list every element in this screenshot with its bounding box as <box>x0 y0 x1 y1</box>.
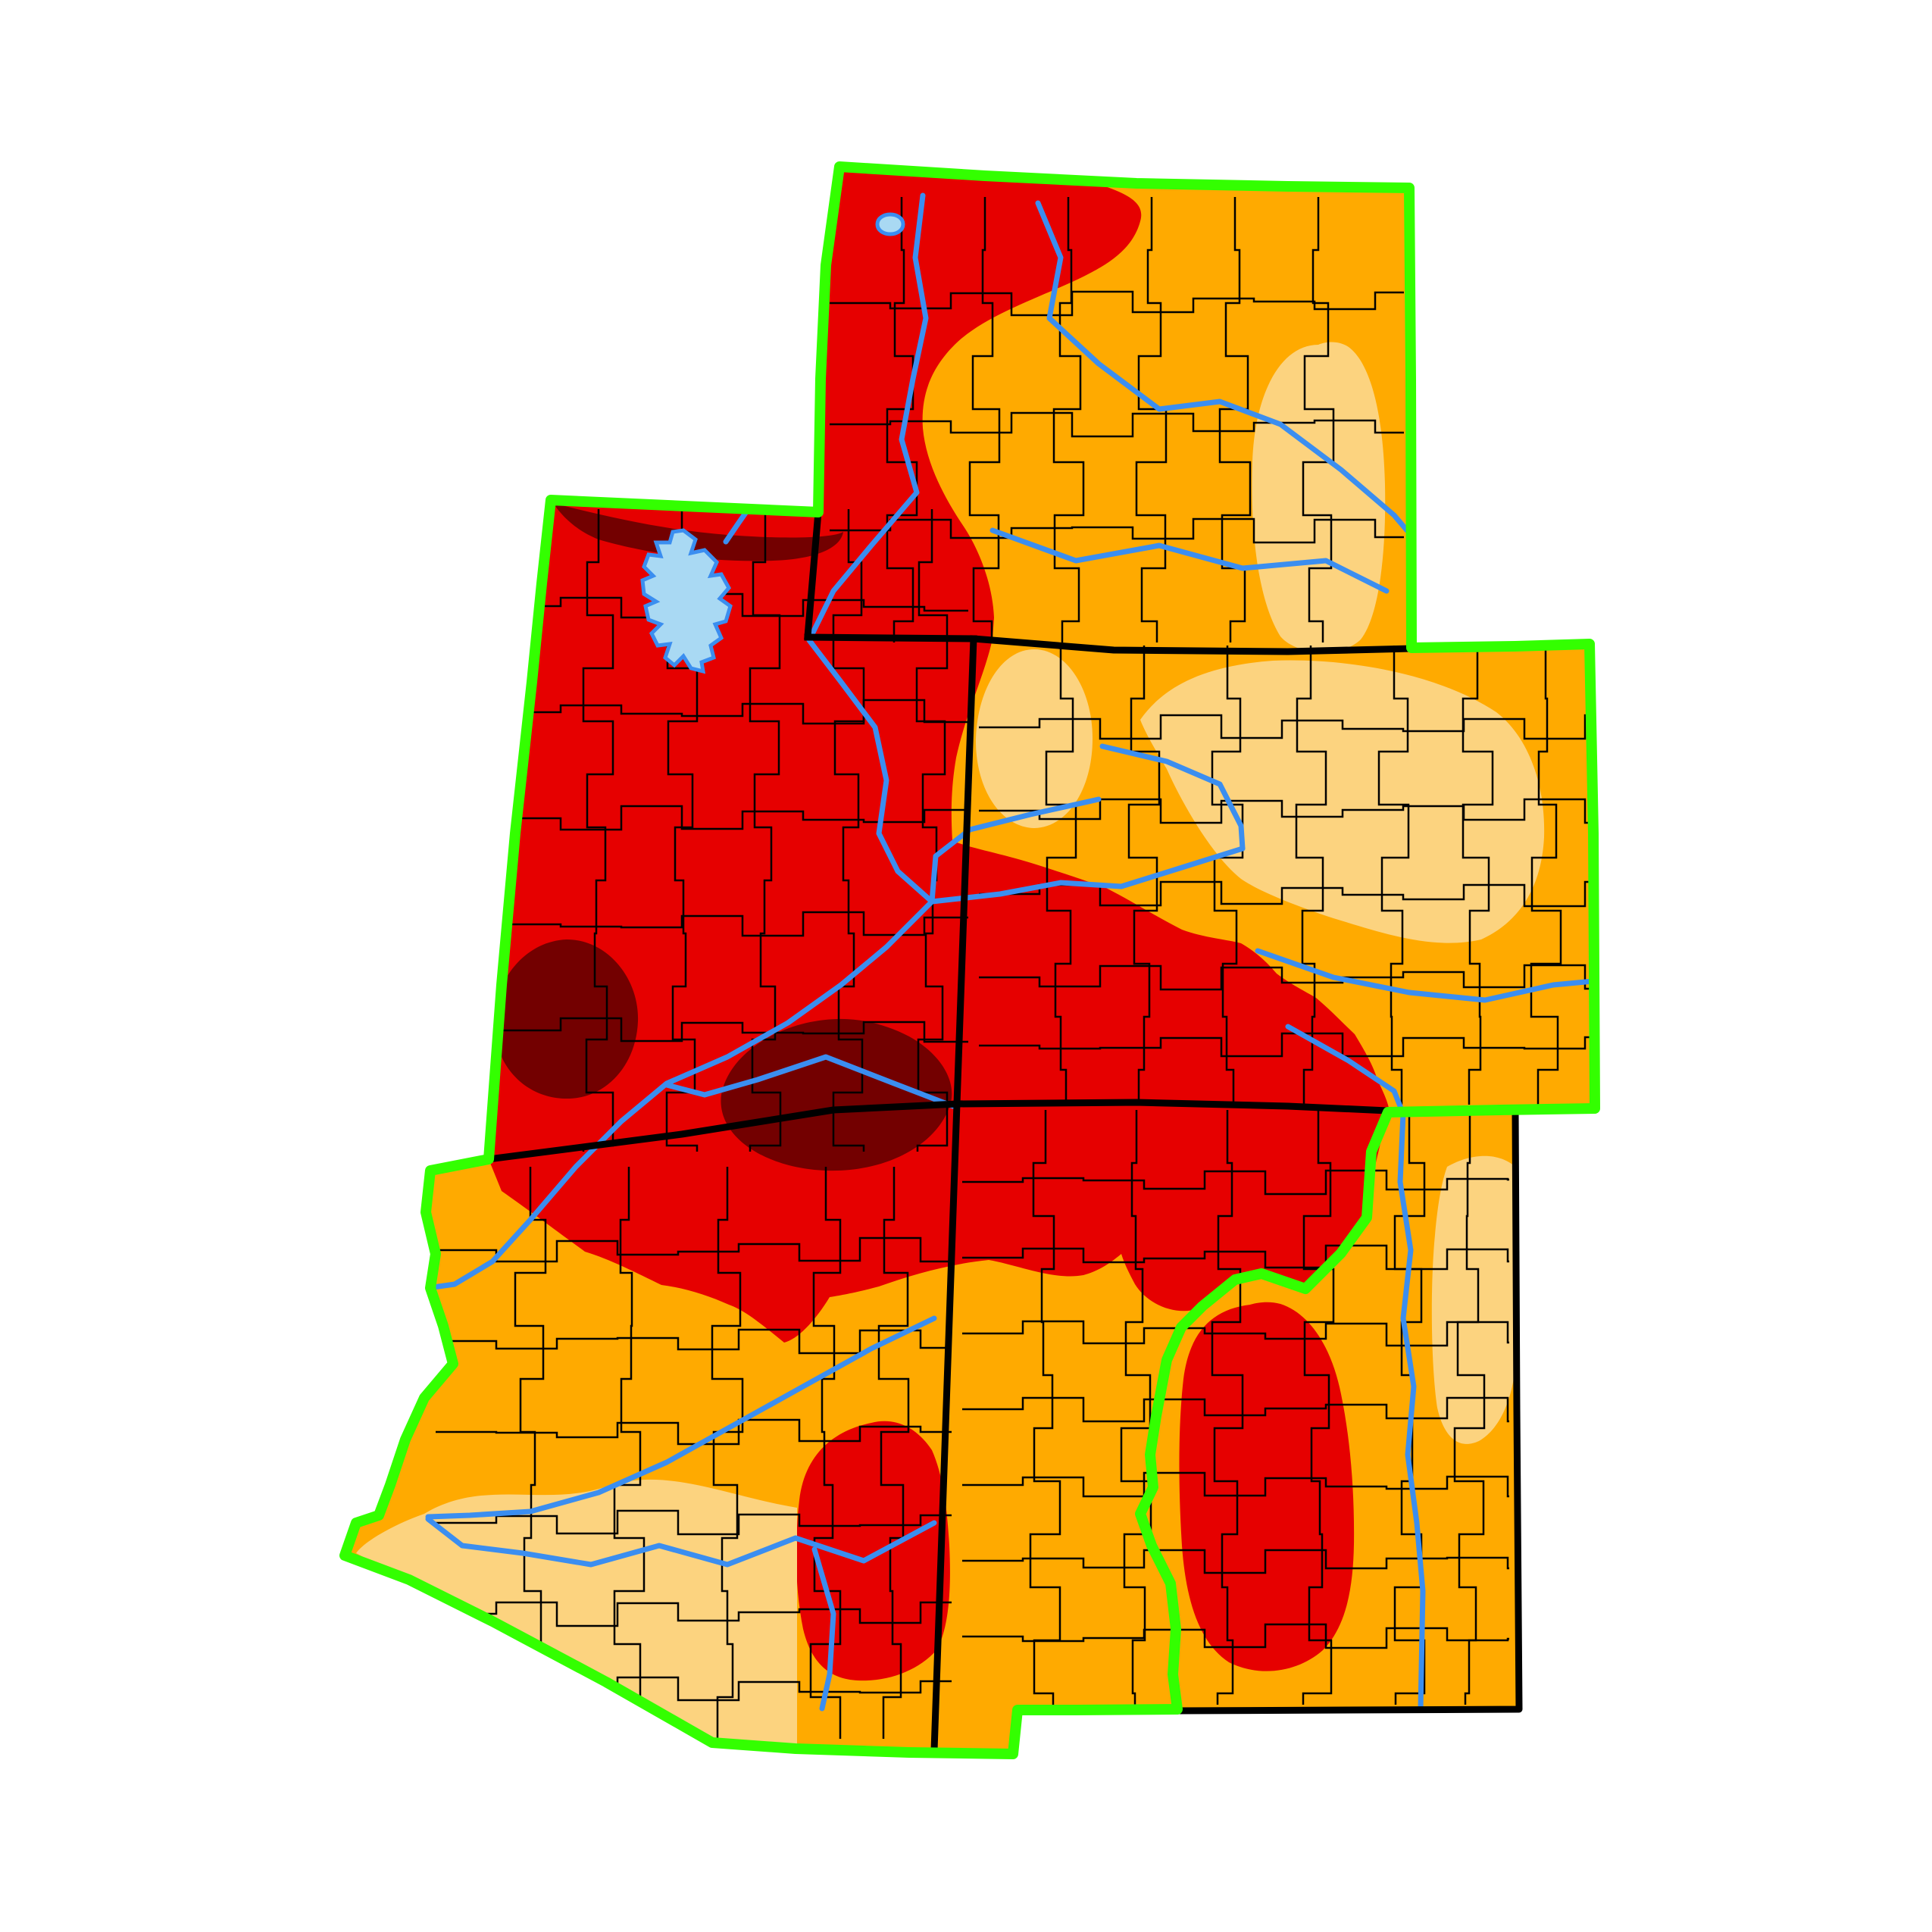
drought-map <box>0 0 1932 1932</box>
small-lake-wyoming <box>877 214 903 234</box>
map-canvas <box>0 0 1932 1932</box>
moderate-drought-wyoming-east <box>1252 342 1385 652</box>
moderate-drought-uinta-basin <box>976 649 1093 828</box>
moderate-drought-arizona-southwest <box>356 1480 797 1746</box>
moderate-drought-new-mexico-east <box>1432 1156 1517 1444</box>
extreme-drought-arizona-blob <box>796 1421 950 1680</box>
